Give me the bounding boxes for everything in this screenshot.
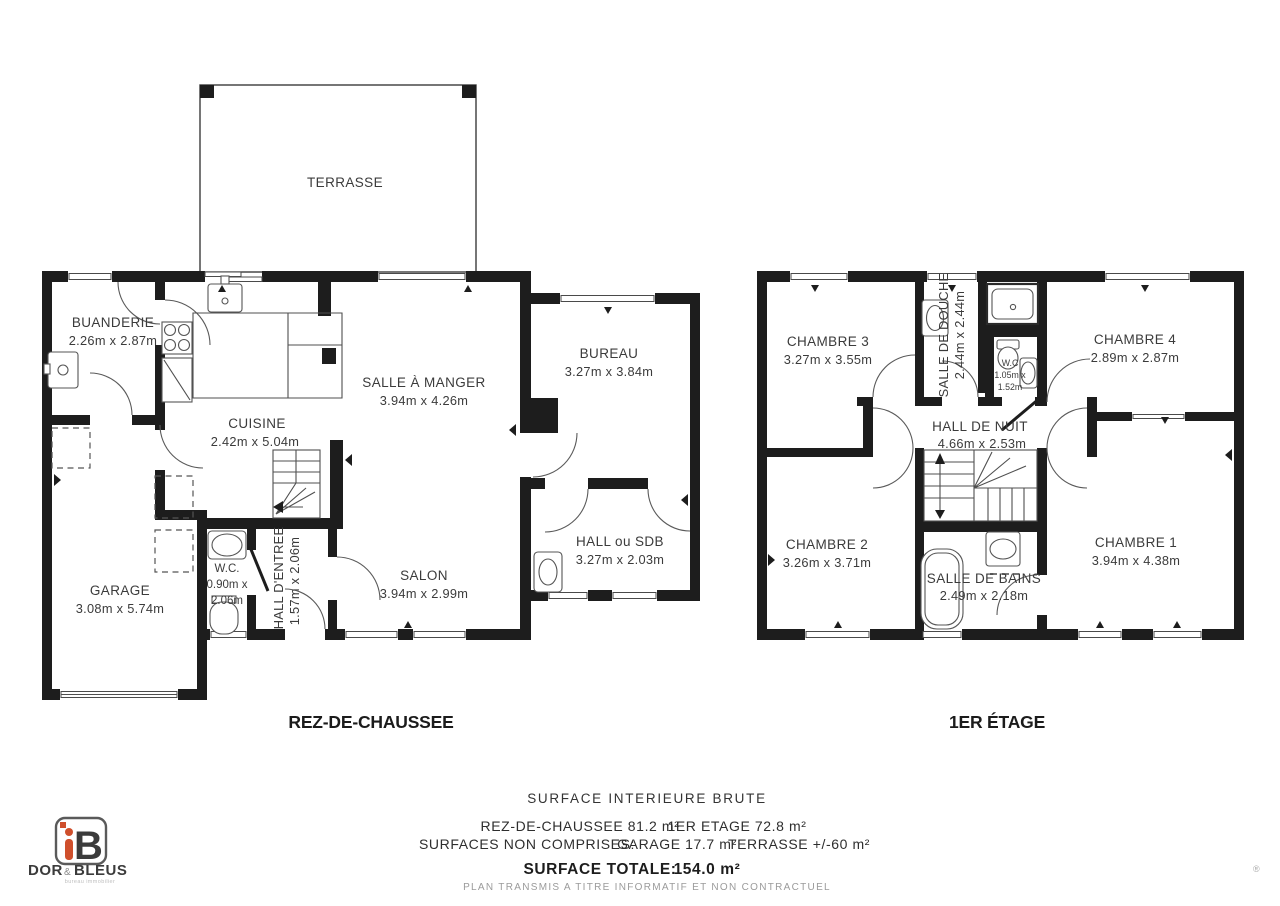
window [549,593,587,599]
room-dims: 2.89m x 2.87m [1091,350,1180,365]
room-label-chambre3: CHAMBRE 3 3.27m x 3.55m [784,334,873,367]
room-name: HALL DE NUIT [932,419,1028,434]
stove-icon [162,322,192,354]
room-label-cuisine: CUISINE 2.42m x 5.04m [211,416,300,449]
room-label-salon: SALON 3.94m x 2.99m [380,568,469,601]
room-label-bureau: BUREAU 3.27m x 3.84m [565,346,654,379]
agency-logo: B DOR & BLEUS bureau immobilier [28,818,127,885]
washing-machine-icon [44,352,78,388]
stairs-ground-icon [273,450,320,518]
door-arc [1047,448,1087,488]
room-dims: 4.66m x 2.53m [938,436,1027,451]
room-name: W.C [1002,358,1019,368]
room-dims: 2.49m x 2.18m [940,588,1029,603]
window [1154,632,1201,638]
room-label-salle-de-douche: SALLE DE DOUCHE 2.44m x 2.44m [936,273,967,398]
arrow-mark [404,621,412,628]
window [791,274,847,280]
brand-word-dor: DOR [28,862,63,879]
room-name: HALL ou SDB [576,534,664,549]
brand-tagline: bureau immobilier [65,879,116,885]
window [379,274,465,280]
wc-sink-icon [208,531,246,559]
arrow-mark [1141,285,1149,292]
summary-garage-area: GARAGE 17.7 m² [617,836,737,852]
room-dims: 3.27m x 2.03m [576,552,665,567]
counter-outline [193,313,342,398]
room-dims: 3.94m x 4.26m [380,393,469,408]
logo-i-dot [65,828,73,836]
room-label-hall-entree: HALL D'ENTREE 1.57m x 2.06m [271,527,302,630]
room-dims: 3.26m x 3.71m [783,555,872,570]
room-name: SALON [400,568,448,583]
door-arc [90,373,132,415]
window [613,593,656,599]
room-label-garage: GARAGE 3.08m x 5.74m [76,583,165,616]
brand-ampersand: & [64,867,71,878]
dishwasher-icon [162,358,192,402]
arrow-mark [464,285,472,292]
summary-total-label: SURFACE TOTALE: [523,861,676,878]
room-label-salle-a-manger: SALLE À MANGER 3.94m x 4.26m [362,375,485,408]
room-dims: 2.06m [211,595,243,607]
room-name: BUANDERIE [72,315,154,330]
door-arc [873,448,913,488]
arrow-mark [834,621,842,628]
summary-total-value: 154.0 m² [674,861,741,878]
window [561,296,654,302]
room-dims: 3.94m x 4.38m [1092,553,1181,568]
room-dims: 1.05m x [994,370,1026,380]
room-name: CUISINE [228,416,286,431]
summary-disclaimer: PLAN TRANSMIS A TITRE INFORMATIF ET NON … [463,882,831,893]
garage-storage-dashed [155,530,193,572]
room-name: CHAMBRE 3 [787,334,869,349]
arrow-mark [768,554,775,566]
door-leaf [250,547,268,591]
window [806,632,869,638]
summary-terrasse-area: TERRASSE +/-60 m² [728,836,870,852]
room-dims: 3.27m x 3.55m [784,352,873,367]
window [346,632,397,638]
door-arc [873,408,913,448]
room-dims: 0.90m x [207,579,248,591]
room-name: CHAMBRE 1 [1095,535,1177,550]
summary-title: SURFACE INTERIEURE BRUTE [527,791,767,806]
room-name: CHAMBRE 2 [786,537,868,552]
room-dims: 3.08m x 5.74m [76,601,165,616]
garage-storage-dashed [52,428,90,468]
ground-floor-title: REZ-DE-CHAUSSEE [288,712,453,732]
room-name: W.C. [215,563,240,575]
brand-word-bleus: BLEUS [74,862,127,879]
room-name: BUREAU [580,346,639,361]
sliding-door [226,277,262,282]
room-dims: 3.27m x 3.84m [565,364,654,379]
arrow-mark [1096,621,1104,628]
door-arc [1047,408,1087,448]
summary-first-area: 1ER ETAGE 72.8 m² [667,818,806,834]
arrow-mark [811,285,819,292]
room-dims: 2.44m x 2.44m [952,291,967,380]
room-name: SALLE DE DOUCHE [936,273,951,398]
window [1079,632,1121,638]
window [923,632,961,638]
room-dims: 1.57m x 2.06m [287,537,302,626]
first-floor-title: 1ER ÉTAGE [949,711,1045,732]
floorplan-drawing: TERRASSE BUANDERIE 2.26m x 2.87m CUISINE… [0,0,1280,906]
summary-excluded-label: SURFACES NON COMPRISES: [419,836,635,852]
floorplan-page: TERRASSE BUANDERIE 2.26m x 2.87m CUISINE… [0,0,1280,906]
room-name: HALL D'ENTREE [271,527,286,630]
arrow-mark [1161,417,1169,424]
room-label-chambre4: CHAMBRE 4 2.89m x 2.87m [1091,332,1180,365]
summary-ground-area: REZ-DE-CHAUSSEE 81.2 m² [481,818,680,834]
door-arc [545,489,588,532]
window [69,274,111,280]
door-arc [648,489,690,531]
registered-mark: ® [1253,864,1260,874]
hall-sdb-sink-icon [534,552,562,592]
room-name: CHAMBRE 4 [1094,332,1176,347]
room-label-hall-ou-sdb: HALL ou SDB 3.27m x 2.03m [576,534,665,567]
door-arc [533,433,577,477]
room-name: GARAGE [90,583,150,598]
arrow-mark [1225,449,1232,461]
arrow-mark [604,307,612,314]
room-name: SALLE DE BAINS [927,571,1041,586]
window [1106,274,1189,280]
room-label-buanderie: BUANDERIE 2.26m x 2.87m [69,315,158,348]
logo-corner-square [60,822,66,828]
room-dims: 2.42m x 5.04m [211,434,300,449]
terrasse-post [200,85,214,98]
door-arc [337,557,380,600]
door-arc [1047,359,1090,402]
door-arc [160,425,203,468]
room-label-hall-de-nuit: HALL DE NUIT 4.66m x 2.53m [932,419,1028,451]
room-label-wc-ground: W.C. 0.90m x 2.06m [207,563,248,607]
window [414,632,465,638]
room-label-chambre1: CHAMBRE 1 3.94m x 4.38m [1092,535,1181,568]
wall-opening [1133,415,1184,419]
arrow-mark [1173,621,1181,628]
stairs-first-icon [924,450,1037,521]
shower-tray-icon [987,284,1038,324]
door-arc [873,355,915,397]
arrow-mark [345,454,352,466]
room-label-chambre2: CHAMBRE 2 3.26m x 3.71m [783,537,872,570]
surface-summary: SURFACE INTERIEURE BRUTE REZ-DE-CHAUSSEE… [419,791,870,893]
arrow-mark [681,494,688,506]
arrow-mark [54,474,61,486]
room-name-terrasse: TERRASSE [307,175,383,190]
sdb-sink-icon [986,532,1020,574]
room-dims: 1.52m [998,382,1022,392]
room-dims: 3.94m x 2.99m [380,586,469,601]
terrasse-post [462,85,476,98]
arrow-mark [509,424,516,436]
logo-i-stem [65,839,73,860]
room-name: SALLE À MANGER [362,375,485,390]
room-dims: 2.26m x 2.87m [69,333,158,348]
